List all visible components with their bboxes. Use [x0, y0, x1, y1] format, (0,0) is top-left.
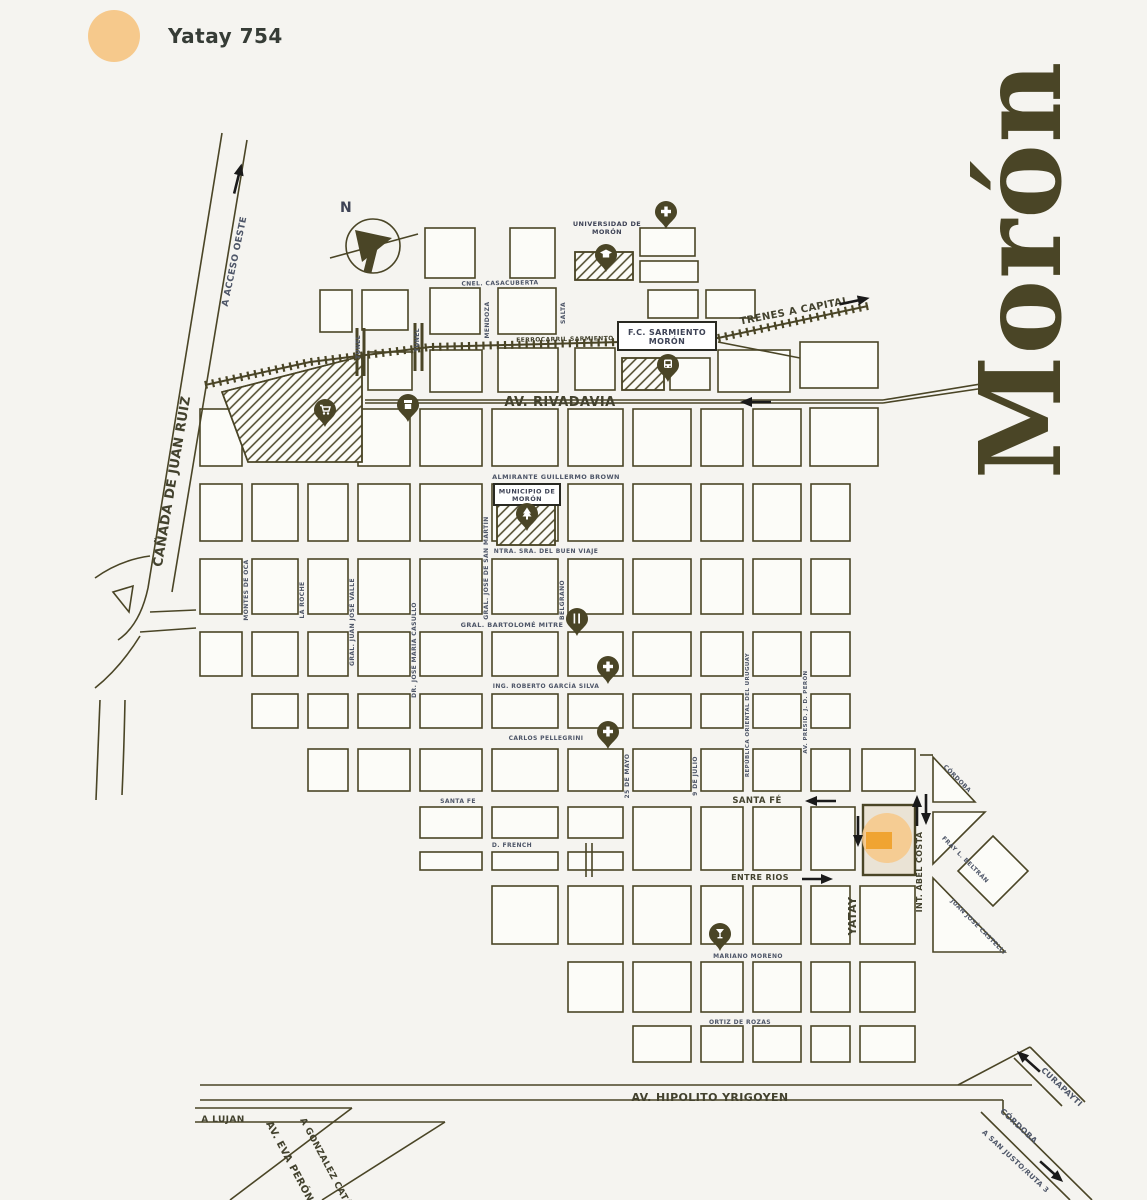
- city-block: [568, 484, 623, 541]
- city-block: [862, 749, 915, 791]
- city-block: [701, 694, 743, 728]
- city-block: [420, 694, 482, 728]
- city-block: [753, 886, 801, 944]
- street-label: BELGRANO: [559, 580, 566, 620]
- city-block: [701, 1026, 743, 1062]
- city-block: [811, 749, 850, 791]
- street-label: 25 DE MAYO: [624, 754, 631, 799]
- street-label: ING. ROBERTO GARCÍA SILVA: [493, 682, 600, 690]
- city-block: [701, 409, 743, 466]
- street-label: AV. RIVADAVIA: [504, 395, 615, 410]
- city-block: [753, 749, 801, 791]
- city-block: [420, 852, 482, 870]
- city-block: [633, 484, 691, 541]
- city-block: [492, 632, 558, 676]
- city-block: [753, 807, 801, 870]
- poi-pin-cross: [597, 721, 619, 749]
- svg-text:UNIVERSIDAD DE: UNIVERSIDAD DE: [573, 220, 641, 228]
- hatched-plaza: [222, 356, 362, 462]
- city-block: [811, 632, 850, 676]
- city-block: [200, 484, 242, 541]
- city-block: [753, 1026, 801, 1062]
- road-path: [95, 636, 140, 688]
- city-block: [633, 962, 691, 1012]
- city-block: [811, 807, 855, 870]
- street-label: MENDOZA: [484, 302, 491, 339]
- city-block: [753, 694, 801, 728]
- city-block: [753, 559, 801, 614]
- street-label: REPÚBLICA ORIENTAL DEL URUGUAY: [744, 652, 751, 777]
- city-block: [568, 886, 623, 944]
- city-block: [753, 484, 801, 541]
- street-label: D. FRENCH: [492, 842, 532, 849]
- marker-building: [866, 832, 892, 849]
- svg-text:MORÓN: MORÓN: [592, 227, 622, 236]
- road-line: [140, 628, 196, 632]
- map-canvas: NCAÑADA DE JUAN RUIZA ACCESO OESTETRENES…: [0, 0, 1147, 1200]
- compass-letter: N: [340, 200, 352, 216]
- city-block: [701, 559, 743, 614]
- road-path: [122, 700, 125, 795]
- street-label: LA ROCHE: [299, 582, 306, 619]
- svg-text:MORÓN: MORÓN: [649, 335, 685, 346]
- city-block: [568, 807, 623, 838]
- compass: N: [330, 200, 418, 273]
- street-label: SALTA: [560, 302, 567, 324]
- city-block: [701, 632, 743, 676]
- street-label: 9 DE JULIO: [692, 756, 699, 796]
- city-block: [200, 632, 242, 676]
- city-block: [252, 632, 298, 676]
- city-block: [308, 749, 348, 791]
- city-block: [753, 409, 801, 466]
- city-block: [718, 350, 790, 392]
- city-block: [568, 694, 623, 728]
- street-label: ORTIZ DE ROZAS: [709, 1019, 771, 1026]
- city-block: [320, 290, 352, 332]
- city-block: [633, 694, 691, 728]
- city-block: [420, 807, 482, 838]
- city-block: [362, 290, 408, 330]
- street-label: CARLOS PELLEGRINI: [509, 735, 584, 742]
- city-block: [420, 484, 482, 541]
- city-block: [701, 807, 743, 870]
- city-block: [633, 807, 691, 870]
- city-block: [358, 484, 410, 541]
- city-block: [498, 348, 558, 392]
- city-block: [492, 807, 558, 838]
- city-block: [252, 694, 298, 728]
- road-path: [95, 556, 150, 578]
- street-label: GRAL. JOSÉ DE SAN MARTÍN: [482, 516, 490, 619]
- street-label: A LUJAN: [201, 1115, 244, 1125]
- legend: Yatay 754: [88, 10, 283, 62]
- city-block: [492, 886, 558, 944]
- svg-text:F.C. SARMIENTO: F.C. SARMIENTO: [628, 328, 706, 337]
- city-block: [633, 409, 691, 466]
- city-block: [811, 694, 850, 728]
- city-block: [200, 559, 242, 614]
- city-block: [633, 749, 691, 791]
- station-label: F.C. SARMIENTOMORÓN: [618, 322, 716, 350]
- city-block: [648, 290, 698, 318]
- city-block: [420, 749, 482, 791]
- city-block: [430, 288, 480, 334]
- city-block: [308, 559, 348, 614]
- city-block: [492, 559, 558, 614]
- city-block: [358, 559, 410, 614]
- street-label: GRAL. BARTOLOMÉ MITRE: [461, 620, 564, 629]
- city-block: [575, 348, 615, 390]
- city-block: [425, 228, 475, 278]
- street-label: CÓRDOBA: [998, 1105, 1040, 1146]
- city-block: [753, 632, 801, 676]
- street-label: SANTA FE: [440, 798, 476, 805]
- svg-text:MORÓN: MORÓN: [512, 494, 542, 503]
- city-block: [492, 409, 558, 466]
- municipio-label: MUNICIPIO DEMORÓN: [494, 484, 560, 505]
- city-block: [811, 1026, 850, 1062]
- street-label: ENTRE RIOS: [731, 873, 789, 882]
- city-block: [492, 694, 558, 728]
- city-block: [860, 1026, 915, 1062]
- street-label: TUNEL: [414, 328, 421, 352]
- city-block: [568, 559, 623, 614]
- city-block: [358, 749, 410, 791]
- street-label: GRAL. JUAN JOSÉ VALLE: [348, 578, 356, 666]
- street-label: TUNEL: [355, 335, 362, 359]
- street-label: DR. JOSÉ MARÍA CASULLO: [410, 602, 418, 698]
- city-block: [308, 484, 348, 541]
- street-label: AV. PRESID. J. D. PERÓN: [802, 670, 809, 753]
- city-block: [860, 962, 915, 1012]
- city-block: [358, 409, 410, 466]
- city-block: [568, 962, 623, 1012]
- poi-pin-cross: [597, 656, 619, 684]
- city-block: [706, 290, 755, 318]
- city-block: [640, 228, 695, 256]
- city-block: [633, 632, 691, 676]
- acceso-oeste-arrow: [229, 162, 246, 194]
- city-block: [810, 408, 878, 466]
- city-block: [568, 749, 623, 791]
- city-block: [252, 559, 298, 614]
- property-marker: [862, 805, 915, 875]
- universidad-label: UNIVERSIDAD DEMORÓN: [573, 220, 641, 236]
- street-label: A ACCESO OESTE: [221, 216, 250, 308]
- city-block: [308, 632, 348, 676]
- city-block: [811, 886, 850, 944]
- street-label: ALMIRANTE GUILLERMO BROWN: [492, 473, 620, 481]
- street-label: MARIANO MORENO: [713, 953, 783, 960]
- city-block: [701, 484, 743, 541]
- road-path: [96, 700, 100, 800]
- road-line: [150, 610, 196, 612]
- city-block: [358, 632, 410, 676]
- legend-marker-dot: [88, 10, 140, 62]
- city-block: [811, 559, 850, 614]
- city-block: [811, 962, 850, 1012]
- street-label: CURAPAYTI: [1039, 1066, 1084, 1109]
- poi-pin-cross: [655, 201, 677, 229]
- city-block: [358, 694, 410, 728]
- city-block: [568, 852, 623, 870]
- city-block: [640, 261, 698, 282]
- street-label: MONTES DE OCA: [243, 559, 250, 620]
- city-block: [252, 484, 298, 541]
- city-block: [860, 886, 915, 944]
- city-block: [568, 409, 623, 466]
- city-block: [492, 852, 558, 870]
- street-label: CNEL. CASACUBERTA: [461, 279, 538, 287]
- city-block: [420, 559, 482, 614]
- street-label: AV. HIPOLITO YRIGOYEN: [632, 1091, 789, 1104]
- legend-label: Yatay 754: [168, 24, 283, 48]
- city-block: [420, 632, 482, 676]
- street-label: CAÑADA DE JUAN RUIZ: [150, 395, 194, 568]
- city-block: [368, 352, 412, 390]
- city-block: [811, 484, 850, 541]
- city-block: [701, 962, 743, 1012]
- city-block: [308, 694, 348, 728]
- city-block: [701, 749, 743, 791]
- city-block: [430, 350, 482, 392]
- street-label: NTRA. SRA. DEL BUEN VIAJE: [494, 548, 598, 555]
- city-block: [498, 288, 556, 334]
- city-block: [492, 749, 558, 791]
- city-block: [633, 886, 691, 944]
- poi-pin-bar: [709, 923, 731, 951]
- street-label: YATAY: [846, 896, 859, 936]
- rivadavia-oneway-arrow: [740, 397, 771, 407]
- city-block: [800, 342, 878, 388]
- entrerios-oneway-arrow: [802, 874, 833, 884]
- street-label: INT. ABEL COSTA: [915, 831, 924, 912]
- santafe-oneway-arrow: [805, 796, 836, 806]
- street-grid: [95, 133, 1092, 1200]
- city-block: [753, 962, 801, 1012]
- page-title: Morón: [947, 35, 1097, 505]
- abelcosta-down-arrow: [921, 794, 931, 825]
- city-block: [633, 1026, 691, 1062]
- city-block: [633, 559, 691, 614]
- street-label: SANTA FÉ: [732, 794, 781, 806]
- city-block: [510, 228, 555, 278]
- city-block: [420, 409, 482, 466]
